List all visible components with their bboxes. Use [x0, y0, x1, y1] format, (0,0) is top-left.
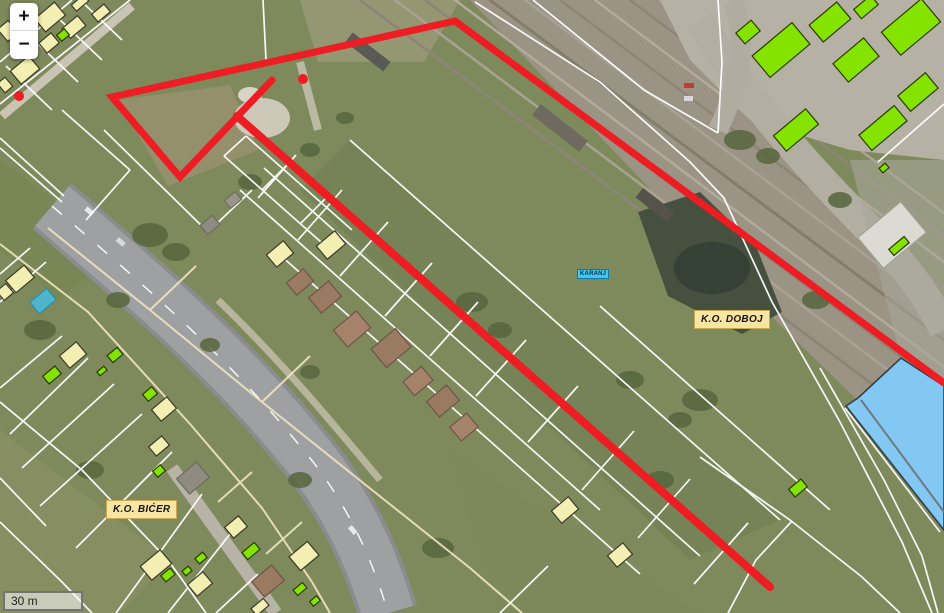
red-boundary-point — [298, 74, 308, 84]
red-boundary-point — [14, 91, 24, 101]
scale-bar: 30 m — [3, 591, 83, 611]
zoom-control: + − — [10, 3, 38, 59]
hydro-label-karanj: KARANJ — [577, 269, 609, 279]
aerial-imagery — [0, 0, 944, 613]
zoom-in-button[interactable]: + — [10, 3, 38, 31]
zoom-out-button[interactable]: − — [10, 31, 38, 59]
map-canvas[interactable]: + − K.O. DOBOJ K.O. BIĆER KARANJ 30 m — [0, 0, 944, 613]
cadastral-label-ko-doboj: K.O. DOBOJ — [694, 310, 770, 329]
cadastral-label-ko-bicer: K.O. BIĆER — [106, 500, 177, 519]
